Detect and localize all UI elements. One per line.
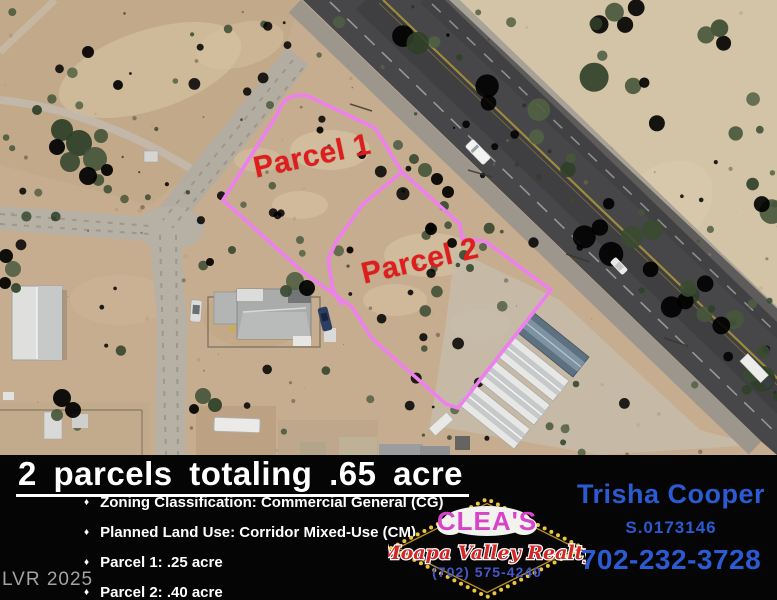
- logo-phone: (702) 575-4240: [432, 564, 542, 580]
- suv-parked: [190, 300, 203, 323]
- agent-info: Trisha Cooper S.0173146 702-232-3728: [568, 479, 774, 576]
- info-banner: 2 parcels totaling .65 acre ♦Zoning Clas…: [0, 455, 777, 600]
- agent-phone: 702-232-3728: [568, 544, 774, 576]
- diamond-bullet-icon: ♦: [84, 497, 89, 508]
- banner-title: 2 parcels totaling .65 acre: [16, 455, 469, 497]
- bullet-text: Parcel 1: .25 acre: [100, 554, 223, 571]
- bullet-text: Planned Land Use: Corridor Mixed-Use (CM…: [100, 524, 416, 541]
- lvr-watermark: LVR 2025: [2, 569, 93, 591]
- logo-name: CLEA'S: [437, 506, 537, 536]
- bullet-text: Parcel 2: .40 acre: [100, 584, 223, 600]
- agent-license: S.0173146: [568, 518, 774, 538]
- agent-name: Trisha Cooper: [568, 479, 774, 510]
- realty-logo: CLEA'S Moapa Valley Realty (702) 575-424…: [388, 495, 586, 600]
- warehouse-building: [12, 286, 67, 360]
- diamond-bullet-icon: ♦: [84, 527, 89, 538]
- aerial-map: Parcel 1 Parcel 2: [0, 0, 777, 455]
- logo-tagline: Moapa Valley Realty: [388, 542, 586, 564]
- satellite-photo: [0, 0, 777, 455]
- diamond-bullet-icon: ♦: [84, 557, 89, 568]
- listing-flyer: Parcel 1 Parcel 2 2 parcels totaling .65…: [0, 0, 777, 600]
